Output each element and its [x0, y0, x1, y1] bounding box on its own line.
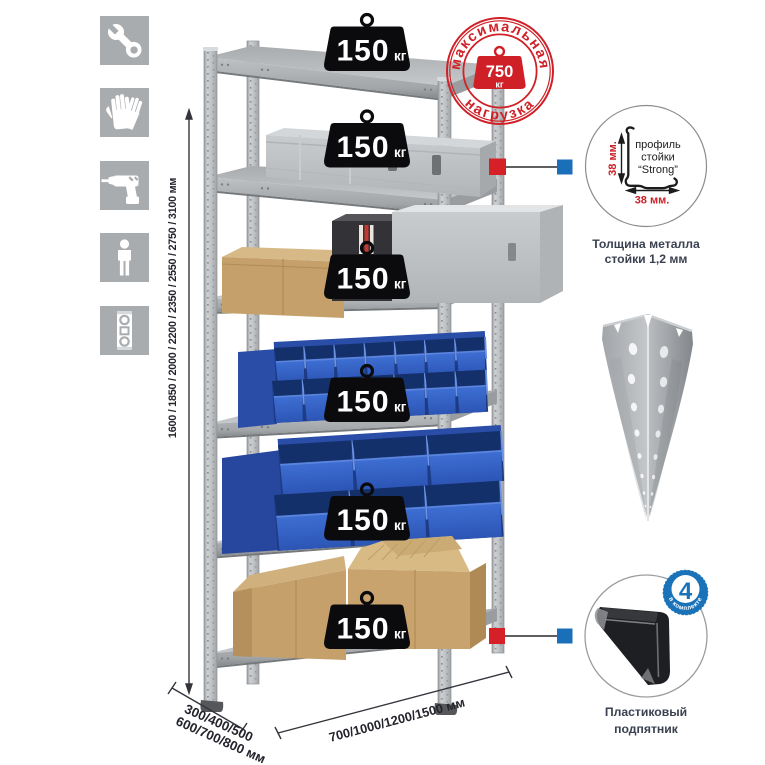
- svg-text:“Strong”: “Strong”: [638, 164, 678, 176]
- svg-text:профиль: профиль: [635, 139, 681, 151]
- svg-text:стойки 1,2 мм: стойки 1,2 мм: [605, 252, 688, 266]
- svg-text:1600 / 1850 / 2000 / 2200 / 23: 1600 / 1850 / 2000 / 2200 / 2350 / 2550 …: [167, 178, 179, 438]
- svg-text:стойки: стойки: [641, 152, 675, 164]
- svg-text:подпятник: подпятник: [614, 722, 679, 736]
- svg-text:38 мм.: 38 мм.: [607, 141, 619, 176]
- svg-text:Пластиковый: Пластиковый: [605, 705, 687, 719]
- svg-text:Толщина металла: Толщина металла: [592, 237, 700, 251]
- svg-text:750: 750: [486, 63, 514, 81]
- svg-text:38 мм.: 38 мм.: [635, 195, 670, 207]
- svg-text:кг: кг: [495, 80, 504, 90]
